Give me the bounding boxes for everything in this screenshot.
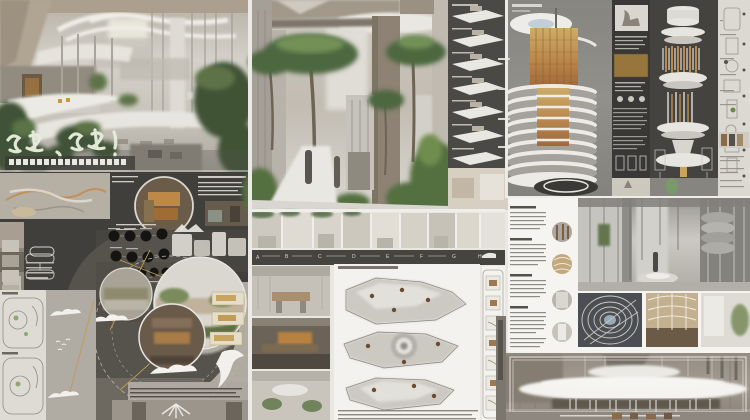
svg-text:H: H [478,254,482,260]
svg-text:F: F [420,254,423,260]
svg-text:D: D [352,254,356,260]
svg-text:G: G [452,254,456,260]
svg-text:C: C [318,254,322,260]
